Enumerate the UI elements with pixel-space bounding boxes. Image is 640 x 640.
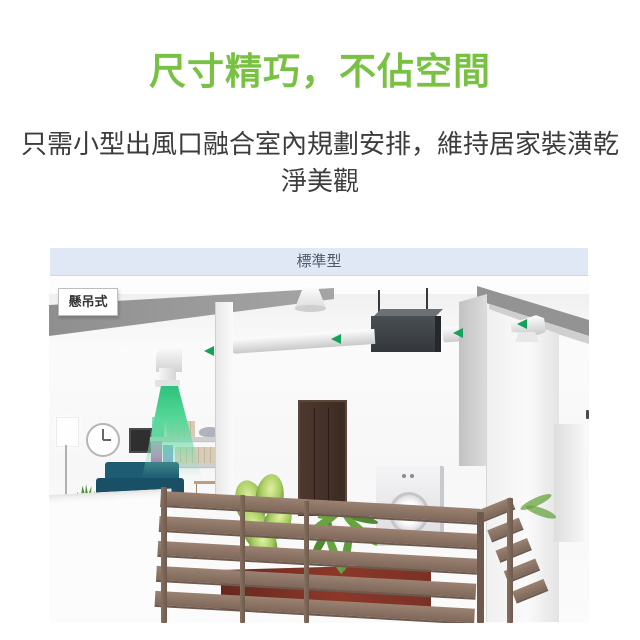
fence-slat (495, 538, 531, 563)
fence-post (304, 501, 309, 623)
page-title: 尺寸精巧，不佔空間 (0, 51, 640, 93)
fence-post (477, 512, 484, 623)
ceiling-lamp-base (295, 305, 326, 312)
fence-slat (512, 579, 548, 604)
fence-post (507, 498, 513, 623)
airflow-arrow-icon (204, 346, 214, 356)
airflow-arrow-icon (517, 319, 527, 329)
wall-clock (86, 423, 120, 457)
fence-post (240, 495, 245, 623)
washer-knob (410, 474, 414, 478)
washer-knob (402, 474, 406, 478)
outlet-diffuser (515, 332, 539, 342)
wall-far-right-shade (554, 424, 584, 542)
door-panel-line (314, 408, 315, 508)
wall-divider (215, 302, 233, 494)
clock-hour-hand (103, 439, 111, 441)
fence-slat (487, 518, 523, 543)
type-banner: 標準型 (50, 248, 588, 276)
promo-page: 尺寸精巧，不佔空間 只需小型出風口融合室內規劃安排，維持居家裝潢乾淨美觀 標準型 (0, 0, 640, 640)
page-subtitle: 只需小型出風口融合室內規劃安排，維持居家裝潢乾淨美觀 (18, 126, 622, 200)
door-panel-line (328, 408, 329, 508)
room-illustration: 懸吊式 (49, 276, 589, 623)
duct-outlet-flange (155, 380, 180, 387)
wall-right-inner-shade (459, 294, 487, 466)
vent-unit-body (371, 316, 441, 352)
airflow-arrow-icon (453, 328, 463, 338)
mount-type-tag: 懸吊式 (58, 288, 118, 316)
floor-lamp-pole (65, 445, 67, 500)
fence-front (154, 491, 481, 623)
floor-lamp-shade (56, 417, 79, 447)
airflow-arrow-icon (331, 334, 341, 344)
wall-hook-mark (586, 410, 589, 419)
fence-post (161, 487, 167, 623)
